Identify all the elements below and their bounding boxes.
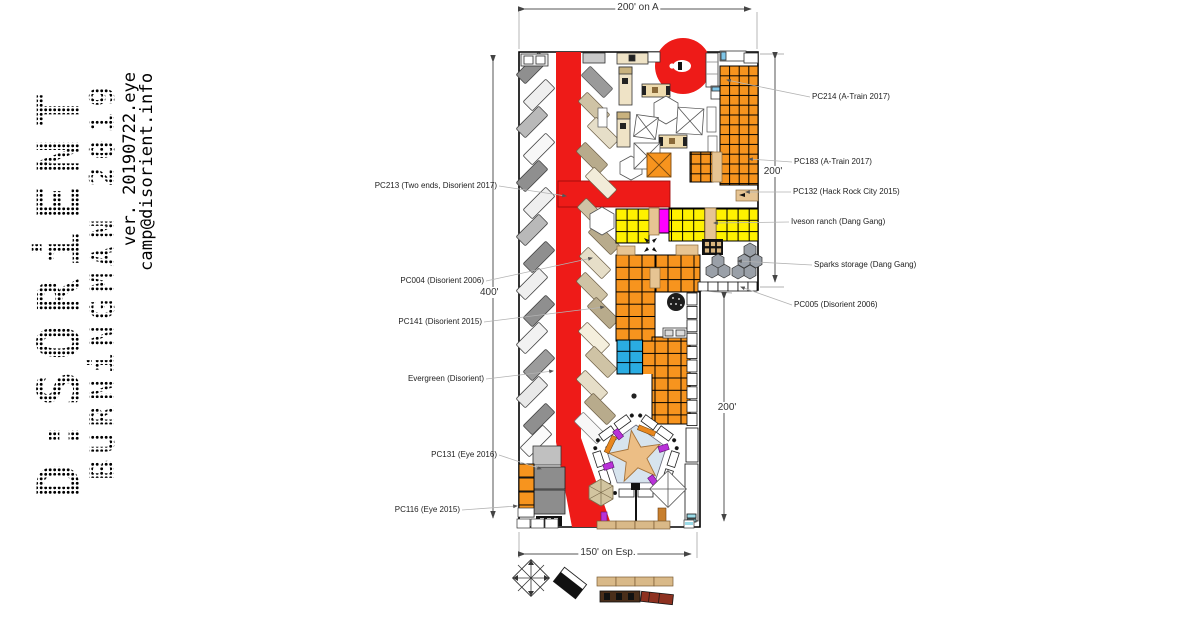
magenta-cell xyxy=(659,209,669,233)
dot-marker xyxy=(631,393,636,398)
callout-pc214: PC214 (A-Train 2017) xyxy=(812,92,890,101)
mid-structures xyxy=(663,328,687,338)
dim-left: 400' xyxy=(478,287,501,298)
callout-pc004: PC004 (Disorient 2006) xyxy=(400,276,484,285)
callout-pc132: PC132 (Hack Rock City 2015) xyxy=(793,187,900,196)
callout-iveson-ranch: Iveson ranch (Dang Gang) xyxy=(791,217,885,226)
page: { "branding": { "title": "D:SORiENT", "s… xyxy=(0,0,1200,624)
disco-ball xyxy=(667,293,685,311)
callout-pc141: PC141 (Disorient 2015) xyxy=(398,317,482,326)
callout-pc183: PC183 (A-Train 2017) xyxy=(794,157,872,166)
cyan-box-stripe xyxy=(685,522,693,525)
brown-marker xyxy=(658,508,666,522)
stage-mast-base xyxy=(631,483,640,490)
truck-icon xyxy=(553,567,586,598)
orange-shade-structure xyxy=(647,153,671,177)
callout-pc213: PC213 (Two ends, Disorient 2017) xyxy=(375,181,497,190)
container-column-east xyxy=(685,293,698,522)
planks-south xyxy=(597,521,670,529)
dim-top: 200' on A xyxy=(615,2,660,13)
legend-icons xyxy=(513,560,674,605)
sparks-storage xyxy=(702,239,723,255)
site-plan-map xyxy=(0,0,1200,624)
planks-icon xyxy=(597,577,673,586)
art-car-icon xyxy=(600,591,673,605)
callout-evergreen: Evergreen (Disorient) xyxy=(408,374,484,383)
dim-right-upper: 200' xyxy=(762,166,785,177)
callout-pc131: PC131 (Eye 2016) xyxy=(431,450,497,459)
dim-right-lower: 200' xyxy=(716,402,739,413)
blue-camp-grid xyxy=(617,340,643,374)
yellow-camp-grids xyxy=(616,208,758,243)
callout-pc116: PC116 (Eye 2015) xyxy=(395,505,460,514)
shade-structure-icon xyxy=(513,560,550,597)
dim-bottom: 150' on Esp. xyxy=(578,547,637,558)
callout-sparks-storage: Sparks storage (Dang Gang) xyxy=(814,260,916,269)
callout-pc005: PC005 (Disorient 2006) xyxy=(794,300,878,309)
